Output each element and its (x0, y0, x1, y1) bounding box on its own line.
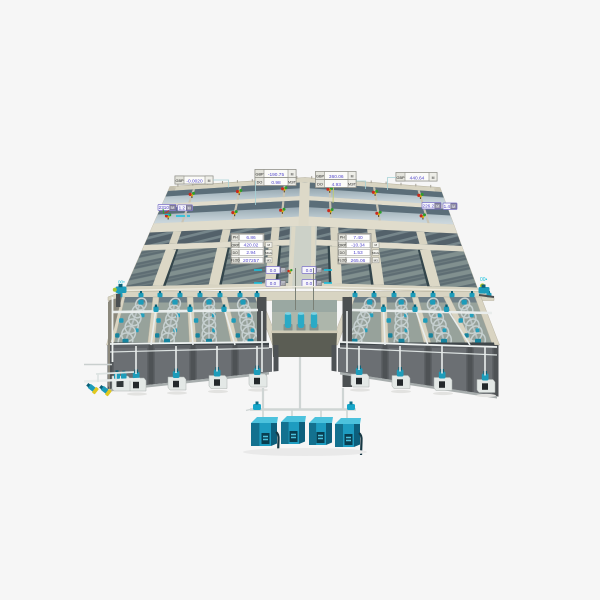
svg-text:420.02: 420.02 (244, 243, 259, 249)
svg-text:-0.0020: -0.0020 (186, 178, 203, 184)
svg-text:FLOD: FLOD (338, 259, 348, 263)
svg-text:1.4: 1.4 (444, 204, 451, 209)
svg-text:0.0: 0.0 (306, 268, 313, 273)
svg-text:GBP: GBP (396, 176, 404, 180)
svg-text:M: M (291, 173, 294, 177)
svg-text:M: M (171, 206, 174, 210)
svg-text:M: M (452, 205, 455, 209)
svg-text:ORP: ORP (232, 243, 240, 247)
svg-text:207257: 207257 (243, 258, 259, 264)
svg-text:MG/L: MG/L (372, 251, 380, 255)
svg-text:M: M (188, 206, 191, 210)
svg-text:0.0: 0.0 (270, 268, 277, 273)
svg-text:DO: DO (340, 251, 345, 255)
svg-text:1.53: 1.53 (353, 250, 363, 256)
svg-text:M3: M3 (374, 258, 378, 262)
svg-text:GBP: GBP (175, 179, 183, 183)
svg-text:FLOD: FLOD (231, 259, 241, 263)
svg-text:440.64: 440.64 (410, 175, 425, 181)
svg-text:2.94: 2.94 (246, 250, 256, 256)
svg-text:ORP: ORP (339, 243, 347, 247)
svg-text:7.40: 7.40 (353, 235, 363, 241)
svg-text:0.0: 0.0 (306, 281, 313, 286)
svg-text:GBP: GBP (255, 173, 263, 177)
svg-text:M: M (436, 205, 439, 209)
svg-text:M3/T: M3/T (288, 181, 296, 185)
svg-text:DO: DO (257, 181, 263, 185)
svg-text:0.98: 0.98 (271, 180, 281, 186)
svg-text:M: M (351, 175, 354, 179)
svg-text:00•: 00• (118, 280, 125, 285)
svg-text:M: M (208, 179, 211, 183)
svg-text:MG/L: MG/L (265, 251, 273, 255)
svg-text:DO: DO (317, 183, 323, 187)
svg-text:1.2: 1.2 (179, 205, 186, 210)
svg-text:M3: M3 (267, 258, 271, 262)
svg-text:-190.75: -190.75 (268, 172, 285, 178)
svg-text:4.93: 4.93 (332, 182, 342, 188)
svg-text:PH: PH (340, 236, 345, 240)
svg-text:DO: DO (233, 251, 238, 255)
svg-text:2310: 2310 (159, 205, 170, 210)
svg-text:-10.34: -10.34 (351, 243, 365, 249)
svg-text:00•: 00• (480, 277, 488, 283)
svg-text:265.06: 265.06 (351, 258, 366, 264)
svg-text:0.0: 0.0 (270, 281, 277, 286)
svg-text:M: M (432, 176, 435, 180)
svg-text:6.86: 6.86 (246, 235, 256, 241)
svg-text:226.2: 226.2 (423, 204, 435, 209)
svg-text:M3/T: M3/T (348, 183, 356, 187)
svg-text:360.06: 360.06 (329, 174, 344, 180)
svg-text:PH: PH (233, 236, 238, 240)
svg-text:GBP: GBP (316, 175, 324, 179)
